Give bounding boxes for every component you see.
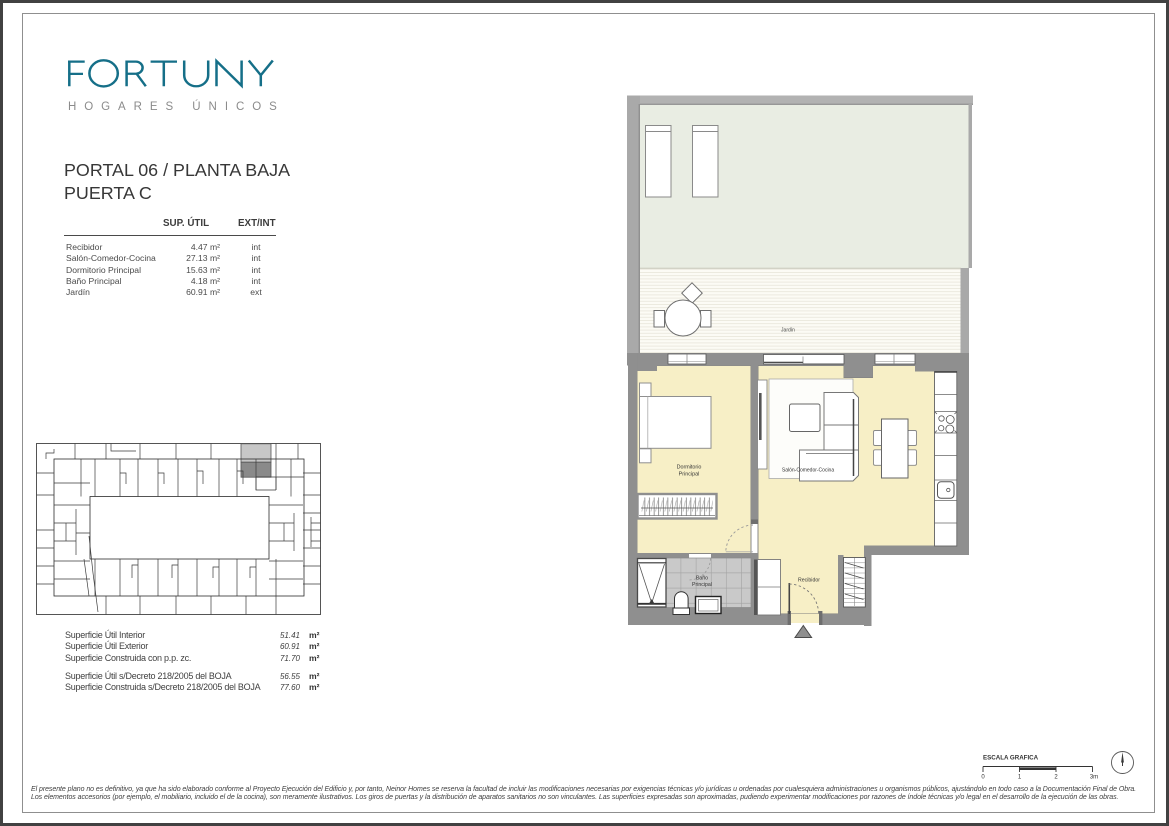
svg-text:1: 1 — [1018, 775, 1022, 781]
svg-text:Jardín: Jardín — [781, 328, 795, 334]
svg-text:Baño: Baño — [696, 576, 708, 582]
svg-text:3m: 3m — [1090, 775, 1098, 781]
svg-text:Principal: Principal — [692, 582, 712, 588]
svg-text:Dormitorio: Dormitorio — [677, 465, 702, 471]
svg-text:ESCALA GRAFICA: ESCALA GRAFICA — [983, 755, 1039, 762]
svg-text:2: 2 — [1054, 775, 1058, 781]
svg-text:Recibidor: Recibidor — [798, 578, 820, 584]
svg-text:0: 0 — [981, 775, 985, 781]
svg-text:Salón-Comedor-Cocina: Salón-Comedor-Cocina — [782, 468, 834, 474]
svg-text:Principal: Principal — [679, 472, 700, 478]
